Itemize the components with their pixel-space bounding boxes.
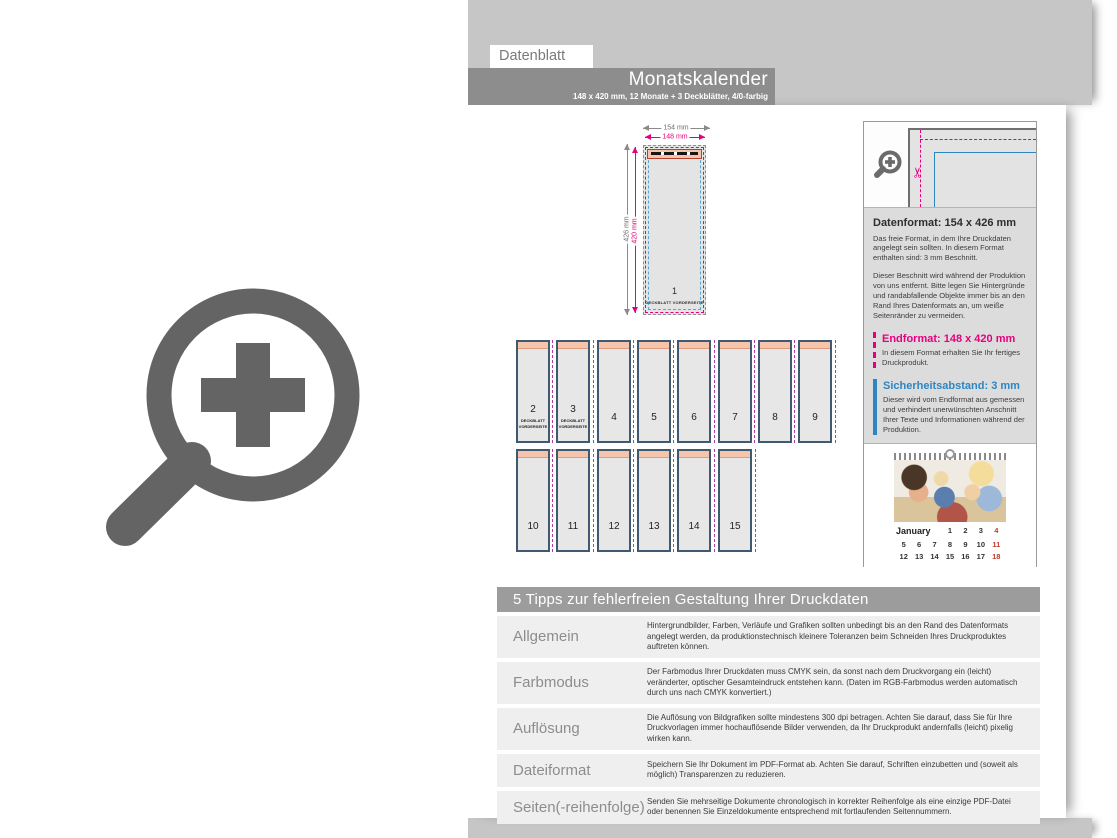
binding-strip xyxy=(599,342,629,349)
info-panel: ✂ Datenformat: 154 x 426 mm Das freie Fo… xyxy=(863,121,1037,567)
page-tile: 3DECKBLATT VORDERSEITE xyxy=(556,340,590,443)
tile-cover-label: DECKBLATT VORDERSEITE xyxy=(518,418,548,430)
magnifier-plus-icon xyxy=(872,149,904,185)
tip-row: AllgemeinHintergrundbilder, Farben, Verl… xyxy=(497,616,1040,658)
tile-number: 12 xyxy=(599,521,629,532)
binding-strip xyxy=(639,342,669,349)
calendar-week: January1234 xyxy=(896,525,1004,539)
format-info-section: Datenformat: 154 x 426 mm Das freie Form… xyxy=(864,208,1036,444)
calendar-month: January xyxy=(896,525,942,539)
tip-row: FarbmodusDer Farbmodus Ihrer Druckdaten … xyxy=(497,662,1040,704)
calendar-week: 12131415161718 xyxy=(896,551,1004,563)
safety-block: Sicherheitsabstand: 3 mm Dieser wird vom… xyxy=(873,379,1027,435)
calendar-day: 6 xyxy=(911,539,926,551)
tile-number: 11 xyxy=(558,521,588,532)
wire-binding-bar xyxy=(651,152,698,155)
binding-strip xyxy=(720,451,750,458)
calendar-day: 8 xyxy=(942,539,957,551)
page-tile: 5 xyxy=(637,340,671,443)
tile-number: 13 xyxy=(639,521,669,532)
page-tile: 12 xyxy=(597,449,631,552)
binding-strip xyxy=(558,451,588,458)
safety-line-horizontal xyxy=(934,152,1036,153)
page-tile: 2DECKBLATT VORDERSEITE xyxy=(516,340,550,443)
tip-text: Speichern Sie Ihr Dokument im PDF-Format… xyxy=(647,754,1040,787)
tips-table: AllgemeinHintergrundbilder, Farben, Verl… xyxy=(497,616,1040,828)
product-subtitle: 148 x 420 mm, 12 Monate + 3 Deckblätter,… xyxy=(468,91,768,102)
calendar-day: 2 xyxy=(958,525,973,539)
tile-number: 6 xyxy=(679,412,709,423)
endformat-block: Endformat: 148 x 420 mm In diesem Format… xyxy=(873,332,1027,368)
tile-number: 5 xyxy=(639,412,669,423)
tile-number: 8 xyxy=(760,412,790,423)
page-tile: 11 xyxy=(556,449,590,552)
safety-text: Dieser wird vom Endformat aus gemessen u… xyxy=(883,395,1027,435)
endformat-cut-line-horizontal xyxy=(920,139,1036,140)
calendar-day: 1 xyxy=(942,525,957,539)
tip-label: Dateiformat xyxy=(497,754,647,787)
page-tile: 8 xyxy=(758,340,792,443)
calendar-day: 12 xyxy=(896,551,911,563)
calendar-day: 13 xyxy=(911,551,926,563)
calendar-day: 18 xyxy=(989,551,1004,563)
dimension-label-height-outer: 426 mm xyxy=(624,214,631,243)
tip-label: Seiten(-reihenfolge) xyxy=(497,791,647,824)
calendar-day: 5 xyxy=(896,539,911,551)
page-tile: 6 xyxy=(677,340,711,443)
page-tile: 7 xyxy=(718,340,752,443)
tile-cover-label: DECKBLATT VORDERSEITE xyxy=(558,418,588,430)
page-tile: 15 xyxy=(718,449,752,552)
tile-number: 7 xyxy=(720,412,750,423)
binding-strip xyxy=(518,451,548,458)
binding-strip xyxy=(518,342,548,349)
calendar-day: 15 xyxy=(942,551,957,563)
binding-strip xyxy=(720,342,750,349)
calendar-photo xyxy=(894,460,1006,522)
page-tile: 13 xyxy=(637,449,671,552)
page-tile: 14 xyxy=(677,449,711,552)
calendar-grid: January123456789101112131415161718 xyxy=(894,522,1006,562)
binding-strip xyxy=(800,342,830,349)
dimension-label-height-inner: 420 mm xyxy=(632,216,639,245)
datenformat-text-2: Dieser Beschnitt wird während der Produk… xyxy=(873,271,1027,320)
product-title: Monatskalender xyxy=(468,69,768,91)
tip-label: Farbmodus xyxy=(497,662,647,704)
hanger-ring xyxy=(945,449,955,459)
tile-number: 2 xyxy=(518,404,548,415)
tip-text: Die Auflösung von Bildgrafiken sollte mi… xyxy=(647,708,1040,750)
wire-binding xyxy=(894,453,1006,460)
calendar-day: 17 xyxy=(973,551,988,563)
cover-page-preview: 1 DECKBLATT VORDERSEITE xyxy=(643,145,706,315)
tip-label: Allgemein xyxy=(497,616,647,658)
binding-strip xyxy=(599,451,629,458)
tip-row: Seiten(-reihenfolge)Senden Sie mehrseiti… xyxy=(497,791,1040,824)
product-header: Monatskalender 148 x 420 mm, 12 Monate +… xyxy=(468,68,775,105)
calendar-day: 10 xyxy=(973,539,988,551)
product-photo-section: January123456789101112131415161718 xyxy=(864,444,1036,572)
datasheet-viewer: Datenblatt Monatskalender 148 x 420 mm, … xyxy=(0,0,1117,838)
page-tile: 9 xyxy=(798,340,832,443)
tile-number: 15 xyxy=(720,521,750,532)
page-number: 1 xyxy=(644,286,705,296)
calendar-day: 3 xyxy=(973,525,988,539)
tip-text: Hintergrundbilder, Farben, Verläufe und … xyxy=(647,616,1040,658)
binding-strip xyxy=(558,342,588,349)
tip-text: Der Farbmodus Ihrer Druckdaten muss CMYK… xyxy=(647,662,1040,704)
safety-heading: Sicherheitsabstand: 3 mm xyxy=(883,379,1027,394)
calendar-day: 16 xyxy=(958,551,973,563)
datenformat-heading: Datenformat: 154 x 426 mm xyxy=(873,216,1027,231)
datenformat-text-1: Das freie Format, in dem Ihre Druckdaten… xyxy=(873,234,1027,264)
binding-strip xyxy=(639,451,669,458)
dimension-label-width-outer: 154 mm xyxy=(661,125,690,132)
calendar-preview: January123456789101112131415161718 xyxy=(894,453,1006,562)
endformat-text: In diesem Format erhalten Sie Ihr fertig… xyxy=(882,348,1027,368)
calendar-day: 11 xyxy=(989,539,1004,551)
tips-header: 5 Tipps zur fehlerfreien Gestaltung Ihre… xyxy=(497,587,1040,612)
calendar-week: 567891011 xyxy=(896,539,1004,551)
scissors-icon: ✂ xyxy=(909,167,926,179)
safety-line-vertical xyxy=(934,152,935,207)
calendar-day: 14 xyxy=(927,551,942,563)
tile-number: 14 xyxy=(679,521,709,532)
cover-label: DECKBLATT VORDERSEITE xyxy=(644,300,705,305)
tile-number: 4 xyxy=(599,412,629,423)
tile-number: 9 xyxy=(800,412,830,423)
calendar-day: 9 xyxy=(958,539,973,551)
datenblatt-tab: Datenblatt xyxy=(490,45,593,68)
binding-strip xyxy=(679,342,709,349)
tile-number: 3 xyxy=(558,404,588,415)
zoom-detail-box: ✂ xyxy=(864,122,1036,208)
tip-row: AuflösungDie Auflösung von Bildgrafiken … xyxy=(497,708,1040,750)
calendar-day: 7 xyxy=(927,539,942,551)
dimension-label-width-inner: 148 mm xyxy=(660,134,689,141)
tip-text: Senden Sie mehrseitige Dokumente chronol… xyxy=(647,791,1040,824)
corner-detail-diagram: ✂ xyxy=(908,128,1036,207)
page-tile: 10 xyxy=(516,449,550,552)
zoom-plus-icon xyxy=(95,275,405,585)
binding-strip xyxy=(760,342,790,349)
endformat-heading: Endformat: 148 x 420 mm xyxy=(882,332,1027,347)
binding-area xyxy=(647,149,702,159)
tile-number: 10 xyxy=(518,521,548,532)
calendar-day: 4 xyxy=(989,525,1004,539)
page-tile: 4 xyxy=(597,340,631,443)
tip-label: Auflösung xyxy=(497,708,647,750)
tip-row: DateiformatSpeichern Sie Ihr Dokument im… xyxy=(497,754,1040,787)
binding-strip xyxy=(679,451,709,458)
